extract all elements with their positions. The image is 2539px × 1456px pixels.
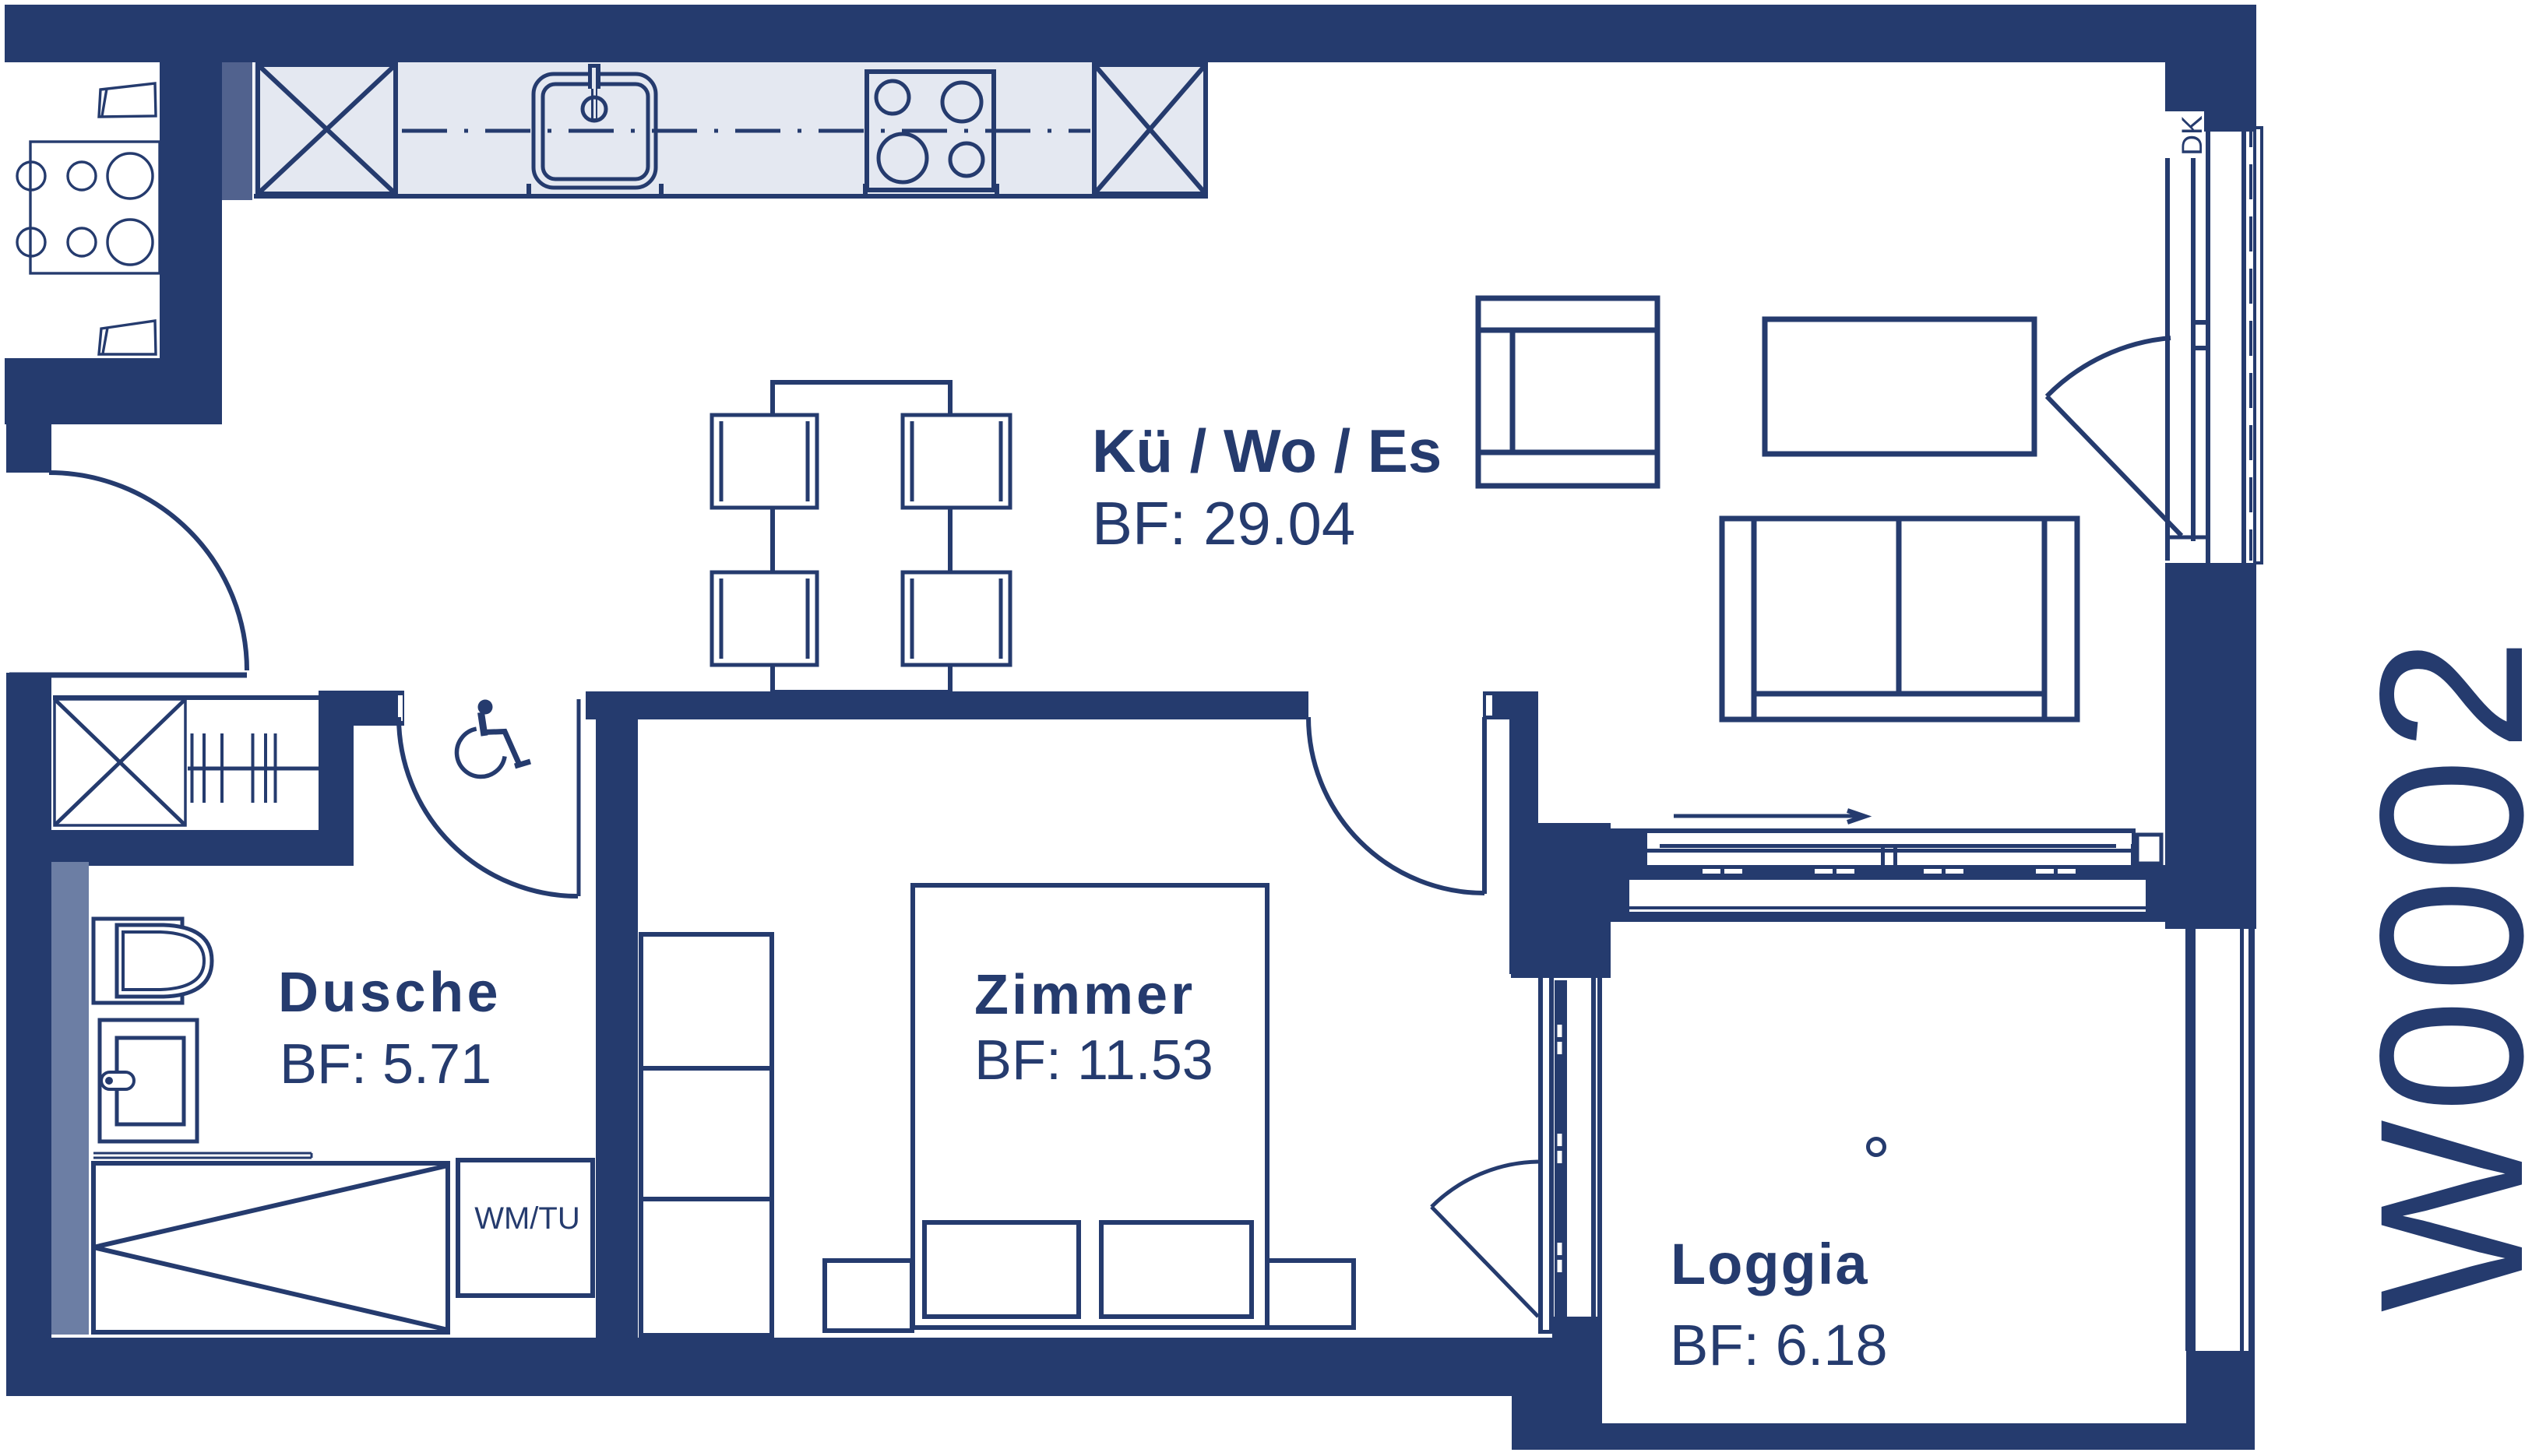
svg-text:BF: 11.53: BF: 11.53	[974, 1029, 1213, 1092]
svg-text:DK: DK	[2176, 115, 2208, 156]
svg-text:W0002: W0002	[2337, 631, 2539, 1312]
svg-text:Loggia: Loggia	[1671, 1232, 1869, 1296]
svg-text:Kü / Wo / Es: Kü / Wo / Es	[1092, 417, 1442, 485]
svg-text:Dusche: Dusche	[278, 962, 502, 1024]
svg-text:WM/TU: WM/TU	[474, 1201, 580, 1236]
svg-text:Zimmer: Zimmer	[974, 964, 1196, 1026]
svg-text:BF: 29.04: BF: 29.04	[1092, 489, 1355, 557]
svg-text:BF: 6.18: BF: 6.18	[1670, 1313, 1888, 1377]
svg-text:BF: 5.71: BF: 5.71	[280, 1033, 491, 1096]
